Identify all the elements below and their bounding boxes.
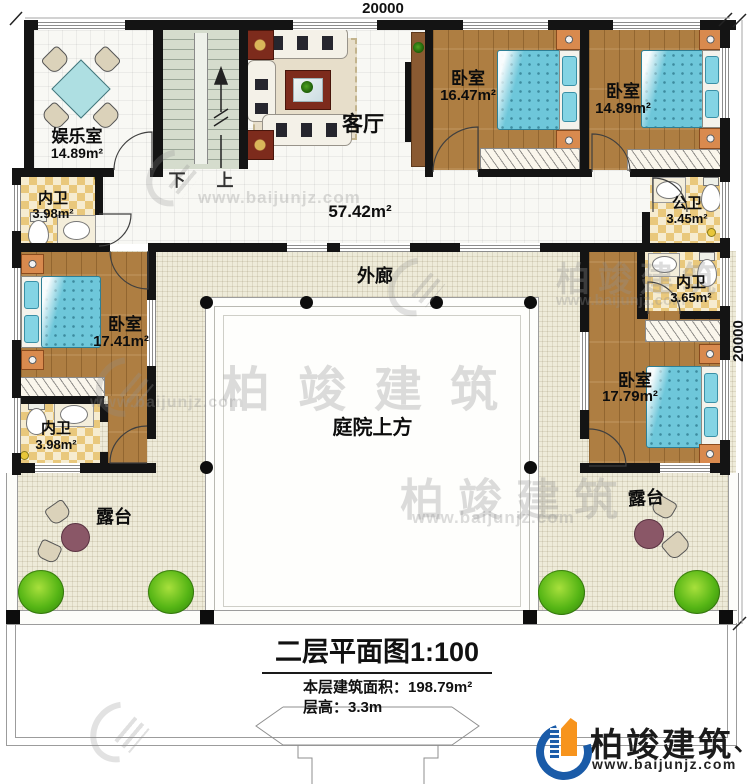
wall <box>12 463 35 473</box>
room-label-bath-top-left: 内卫 <box>13 191 93 207</box>
wall <box>710 463 730 473</box>
window <box>613 20 700 30</box>
parapet-right <box>728 473 739 623</box>
dimension-top: 20000 <box>343 0 423 17</box>
column <box>6 610 20 624</box>
wall <box>637 311 648 319</box>
roof-outline-left-2 <box>15 623 16 738</box>
room-area-living: 57.42m² <box>310 203 410 221</box>
room-label-bath-bottom-left: 内卫 <box>16 421 96 437</box>
terrace-table <box>634 519 664 549</box>
wall <box>410 243 460 252</box>
room-label-corridor: 外廊 <box>325 267 425 286</box>
stair-label-down: 下 <box>162 172 192 190</box>
terrace-table <box>61 523 90 552</box>
pillow <box>24 281 39 309</box>
logo-url: www.baijunjz.com <box>592 756 737 772</box>
column <box>200 461 213 474</box>
side-table <box>246 130 274 160</box>
watermark-logo-icon <box>78 689 162 774</box>
plan-floor-area: 本层建筑面积：198.79m² <box>303 676 603 697</box>
wardrobe <box>627 149 723 171</box>
room-area-bedroom-top-1: 16.47m² <box>413 88 523 104</box>
window <box>35 463 80 473</box>
window <box>720 48 730 118</box>
column <box>524 296 537 309</box>
wall <box>95 177 103 215</box>
column <box>300 296 313 309</box>
column <box>200 610 214 624</box>
pillow <box>704 407 718 437</box>
room-label-terrace-left: 露台 <box>64 508 164 527</box>
door-stop <box>20 451 29 460</box>
watermark-text: 柏竣建筑 <box>222 350 526 420</box>
tree <box>148 570 194 614</box>
window <box>293 20 377 30</box>
room-area-bath-public: 3.45m² <box>647 212 727 226</box>
plant <box>413 42 424 53</box>
column <box>523 610 537 624</box>
logo-accent-mark: 、 <box>734 726 750 758</box>
room-label-bedroom-top-1: 卧室 <box>413 70 523 88</box>
nightstand <box>699 444 721 464</box>
pillow <box>562 56 577 86</box>
watermark-url: www.baijunjz.com <box>412 508 575 528</box>
side-table <box>246 30 274 60</box>
room-area-bath-bottom-left: 3.98m² <box>16 438 96 452</box>
wall <box>478 169 592 177</box>
sofa-left <box>247 60 276 122</box>
window <box>287 243 327 252</box>
room-label-bath-public: 公卫 <box>647 196 727 212</box>
column <box>200 296 213 309</box>
stair-label-up: 上 <box>210 172 240 190</box>
room-area-bath-right: 3.65m² <box>651 291 731 305</box>
window <box>340 243 410 252</box>
wall <box>80 463 156 473</box>
door-stop <box>707 228 716 237</box>
room-label-living: 客厅 <box>318 114 408 136</box>
window <box>720 360 730 440</box>
wall <box>148 243 287 252</box>
window <box>660 463 710 473</box>
window <box>12 268 21 340</box>
wall <box>239 20 248 169</box>
room-label-bath-right: 内卫 <box>651 275 731 291</box>
room-area-bath-top-left: 3.98m² <box>13 207 93 221</box>
floor-plan: www.baijunjz.com 柏竣建筑 www.baijunjz.com 柏… <box>0 0 750 784</box>
room-area-bedroom-right: 17.79m² <box>575 389 685 405</box>
room-label-bedroom-top-2: 卧室 <box>568 83 678 101</box>
wall <box>327 243 340 252</box>
wall <box>540 243 730 252</box>
parapet-bottom <box>6 610 737 625</box>
room-area-bedroom-left: 17.41m² <box>66 334 176 350</box>
nightstand <box>21 254 44 274</box>
window <box>38 20 125 30</box>
tree <box>538 570 585 615</box>
room-area-entertainment: 14.89m² <box>22 146 132 161</box>
roof-outline-left-1 <box>6 623 7 746</box>
column <box>719 610 733 624</box>
tree <box>674 570 720 614</box>
window <box>463 20 548 30</box>
watermark-url: www.baijunjz.com <box>90 394 244 412</box>
pillow <box>704 373 718 403</box>
plan-title: 二层平面图1:100 <box>262 630 492 674</box>
window <box>460 243 540 252</box>
plant <box>301 81 313 93</box>
wardrobe <box>480 148 580 170</box>
room-label-bedroom-left: 卧室 <box>70 316 180 334</box>
room-area-bedroom-top-2: 14.89m² <box>568 101 678 117</box>
wall <box>12 243 110 252</box>
pillow <box>705 90 719 118</box>
wall <box>153 20 163 176</box>
dimension-right: 20000 <box>730 299 748 383</box>
pillow <box>705 56 719 84</box>
logo: 柏竣建筑 www.baijunjz.com 、 <box>534 714 750 776</box>
sink <box>63 221 90 240</box>
tree <box>18 570 64 614</box>
nightstand <box>699 128 722 149</box>
wall <box>630 169 730 177</box>
nightstand <box>21 350 44 370</box>
nightstand <box>699 344 721 364</box>
wardrobe <box>645 320 722 342</box>
wall <box>24 168 114 177</box>
nightstand <box>556 29 582 50</box>
courtyard-railing <box>205 297 539 625</box>
room-label-courtyard: 庭院上方 <box>295 418 450 439</box>
parapet-left <box>6 473 18 623</box>
stair-center-rail <box>194 33 208 164</box>
logo-building-icon <box>550 728 559 758</box>
room-label-entertainment: 娱乐室 <box>22 128 132 146</box>
wall <box>680 311 730 319</box>
pillow <box>24 315 39 343</box>
nightstand <box>699 29 722 50</box>
